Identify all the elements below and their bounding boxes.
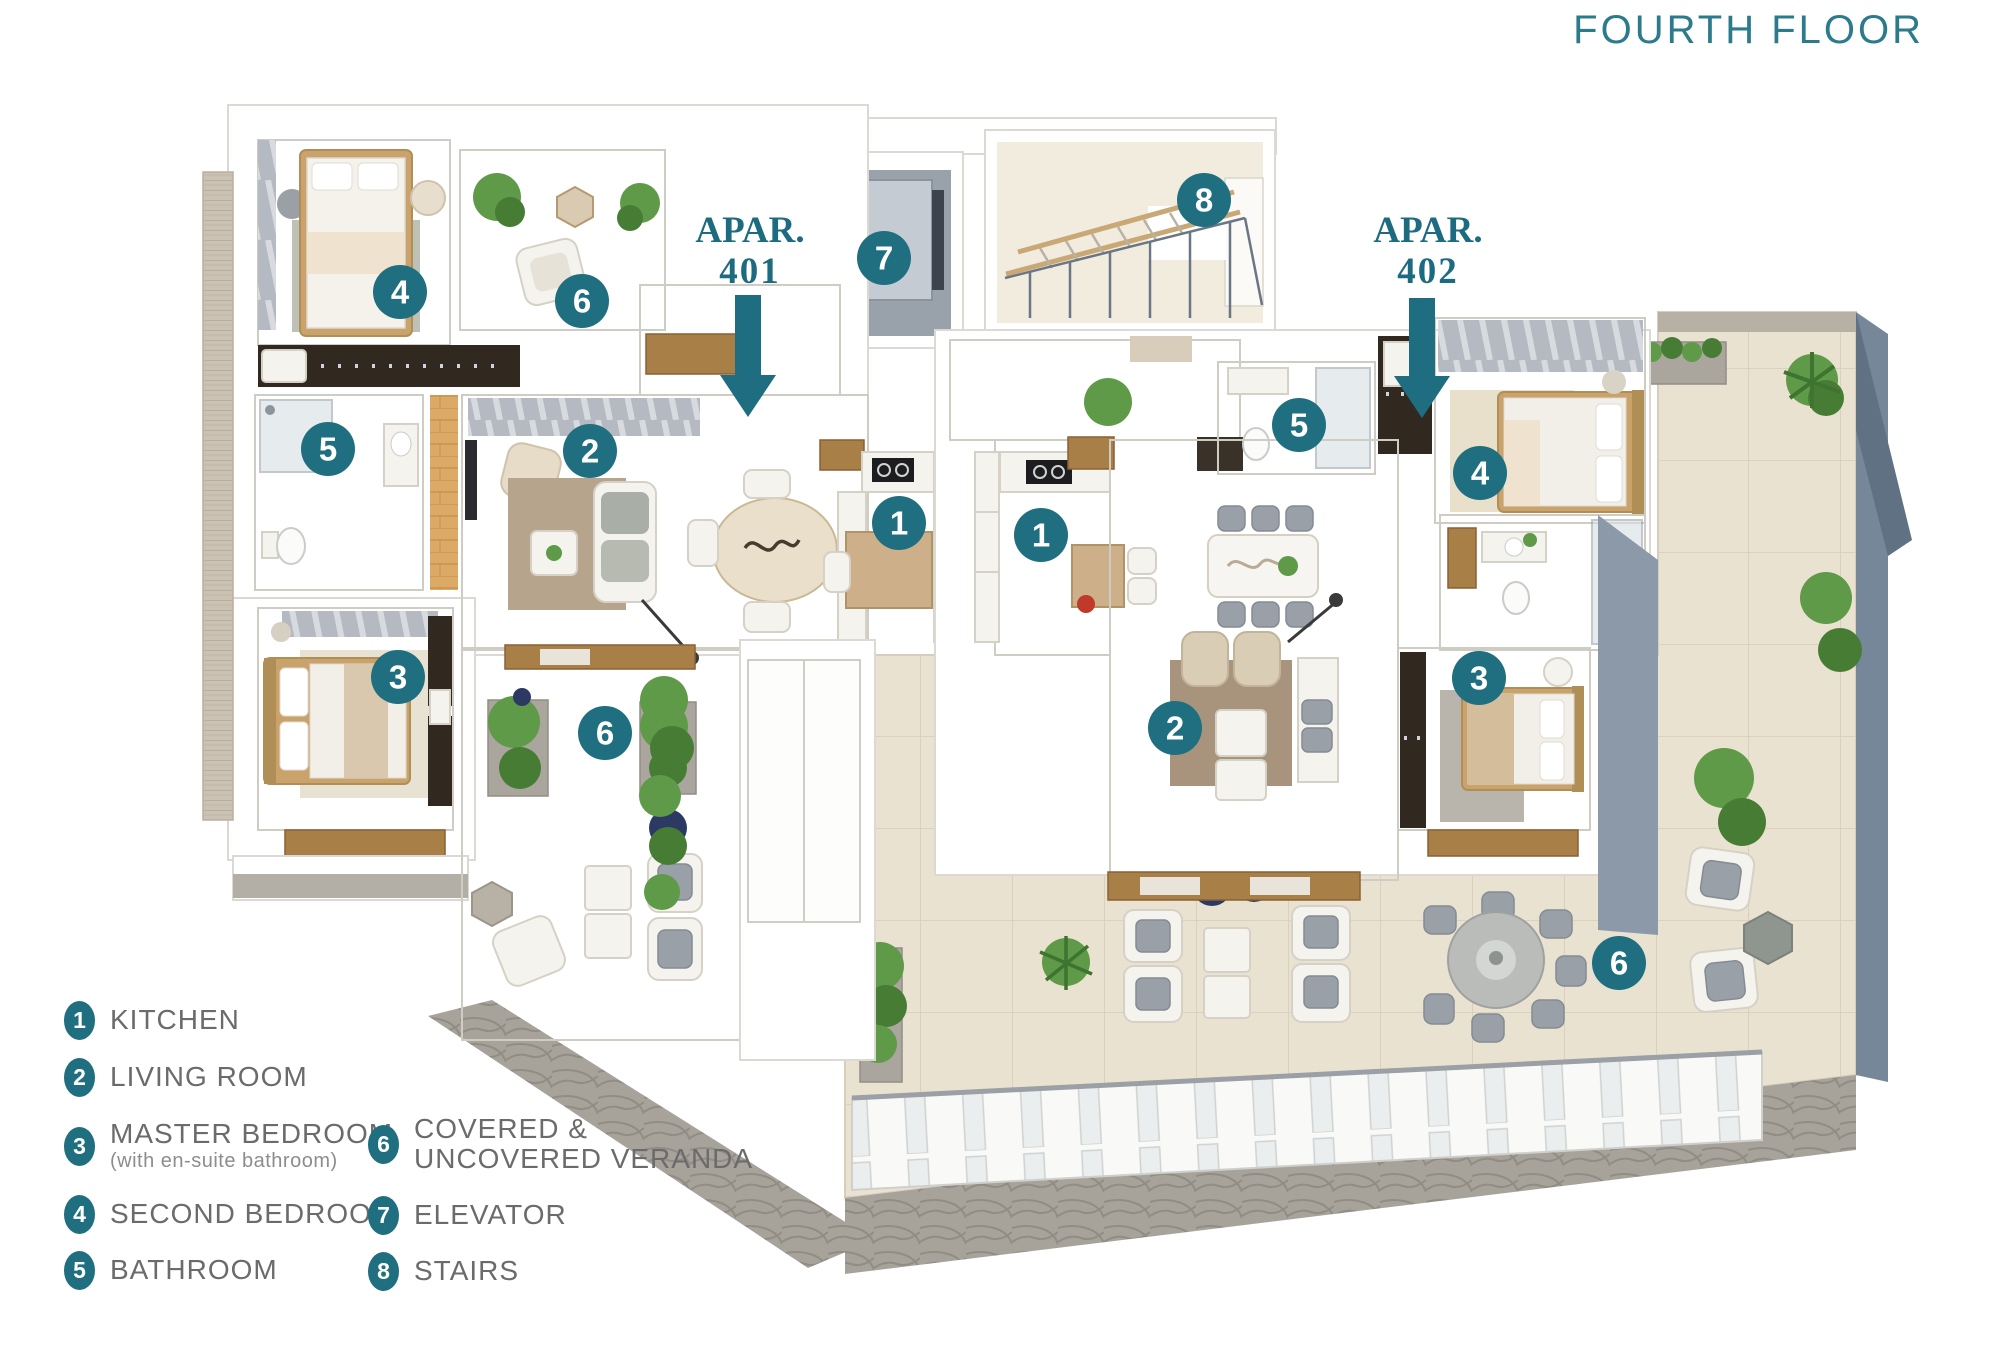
curtains bbox=[282, 611, 438, 637]
toilet bbox=[1243, 428, 1269, 460]
legend-badge: 4 bbox=[64, 1195, 95, 1234]
page-title: FOURTH FLOOR bbox=[1573, 8, 1924, 53]
legend-item-elevator: 7 ELEVATOR bbox=[368, 1196, 567, 1235]
badge-second-bedroom-401: 4 bbox=[373, 265, 427, 319]
headboard bbox=[1632, 390, 1644, 514]
headboard bbox=[264, 658, 276, 784]
legend-badge: 2 bbox=[64, 1058, 95, 1097]
legend-label: LIVING ROOM bbox=[110, 1062, 308, 1092]
legend-item-stairs: 8 STAIRS bbox=[368, 1252, 519, 1291]
legend-badge: 6 bbox=[368, 1125, 399, 1164]
badge-second-bedroom-402: 4 bbox=[1453, 446, 1507, 500]
wardrobe bbox=[1400, 652, 1426, 828]
table bbox=[585, 914, 631, 958]
badge-master-bedroom-402: 3 bbox=[1452, 651, 1506, 705]
legend-label: COVERED & bbox=[414, 1114, 753, 1144]
badge-veranda-401-lower: 6 bbox=[578, 706, 632, 760]
chair bbox=[744, 470, 790, 498]
apartment-402-number: 402 bbox=[1338, 253, 1518, 290]
legend-label: ELEVATOR bbox=[414, 1200, 567, 1230]
svg-text:6: 6 bbox=[1610, 945, 1628, 982]
badge-kitchen-402: 1 bbox=[1014, 508, 1068, 562]
svg-text:3: 3 bbox=[389, 659, 407, 696]
armchair bbox=[1234, 632, 1280, 686]
badge-bathroom-402: 5 bbox=[1272, 398, 1326, 452]
console bbox=[1197, 437, 1243, 471]
svg-text:8: 8 bbox=[1195, 182, 1213, 219]
tall-cabinets bbox=[975, 452, 999, 642]
badge-living-401: 2 bbox=[563, 424, 617, 478]
coffee-table bbox=[1216, 760, 1266, 800]
hallway-401 bbox=[430, 395, 458, 590]
coffee-table bbox=[1216, 710, 1266, 756]
svg-text:3: 3 bbox=[1470, 660, 1488, 697]
tv bbox=[465, 440, 477, 520]
legend-label: MASTER BEDROOM bbox=[110, 1119, 393, 1149]
apartment-401 bbox=[203, 105, 960, 1060]
svg-text:4: 4 bbox=[391, 274, 410, 311]
apartment-402-name: APAR. bbox=[1373, 210, 1482, 251]
fruit-bowl bbox=[1077, 595, 1095, 613]
lamp bbox=[271, 622, 291, 642]
badge-master-bedroom-401: 3 bbox=[371, 650, 425, 704]
legend-label: KITCHEN bbox=[110, 1005, 240, 1035]
badge-elevator: 7 bbox=[857, 231, 911, 285]
legend-item-living-room: 2 LIVING ROOM bbox=[64, 1058, 308, 1097]
lamp bbox=[1602, 370, 1626, 394]
apartment-402-label: APAR. 402 bbox=[1338, 212, 1518, 290]
sliding-door bbox=[1428, 830, 1578, 856]
terrace-wall-wedge bbox=[1598, 515, 1658, 935]
badge-living-402: 2 bbox=[1148, 701, 1202, 755]
table bbox=[585, 866, 631, 910]
legend-item-veranda: 6 COVERED & UNCOVERED VERANDA bbox=[368, 1114, 753, 1174]
toilet bbox=[1503, 582, 1529, 614]
hex-table bbox=[472, 882, 512, 926]
chair bbox=[744, 602, 790, 632]
room-veranda-401-lower bbox=[462, 645, 740, 1040]
entrance-block bbox=[639, 640, 875, 1060]
wardrobe bbox=[428, 716, 452, 806]
legend-badge: 8 bbox=[368, 1252, 399, 1291]
chair bbox=[1128, 578, 1156, 604]
wood-cabinet bbox=[1068, 437, 1114, 469]
elevator-door-gap bbox=[932, 190, 944, 290]
terrace-top-shadow bbox=[1658, 312, 1856, 332]
badge-stairs: 8 bbox=[1177, 173, 1231, 227]
legend-item-kitchen: 1 KITCHEN bbox=[64, 1001, 240, 1040]
legend-item-bathroom: 5 BATHROOM bbox=[64, 1251, 278, 1290]
svg-text:1: 1 bbox=[890, 505, 908, 542]
badge-bathroom-401: 5 bbox=[301, 422, 355, 476]
legend-badge: 3 bbox=[64, 1127, 95, 1166]
legend-badge: 5 bbox=[64, 1251, 95, 1290]
curtains bbox=[258, 140, 276, 330]
svg-text:6: 6 bbox=[573, 283, 591, 320]
badge-veranda-401-upper: 6 bbox=[555, 274, 609, 328]
core-stairs bbox=[985, 130, 1275, 335]
legend-sublabel: (with en-suite bathroom) bbox=[110, 1150, 393, 1173]
legend-label-line2: UNCOVERED VERANDA bbox=[414, 1144, 753, 1174]
floor-plan-page: 4 6 5 2 1 1 3 6 7 8 5 4 3 2 6 FOURTH FLO… bbox=[0, 0, 2000, 1359]
legend-badge: 1 bbox=[64, 1001, 95, 1040]
sliding-door bbox=[285, 830, 445, 856]
curtains bbox=[1438, 320, 1643, 372]
sliding-doors bbox=[505, 645, 695, 669]
stool bbox=[824, 552, 850, 592]
vanity bbox=[1228, 368, 1288, 394]
legend-label: STAIRS bbox=[414, 1256, 519, 1286]
exterior-stone-strip bbox=[203, 172, 233, 820]
armchair bbox=[411, 181, 445, 215]
legend-item-second-bedroom: 4 SECOND BEDROOM bbox=[64, 1195, 396, 1234]
svg-text:2: 2 bbox=[581, 433, 599, 470]
throw-blanket bbox=[1504, 420, 1540, 506]
svg-text:6: 6 bbox=[596, 715, 614, 752]
throw-blanket bbox=[1468, 694, 1514, 784]
ottoman bbox=[262, 350, 306, 382]
legend-label: BATHROOM bbox=[110, 1255, 278, 1285]
svg-text:7: 7 bbox=[875, 240, 893, 277]
legend-item-master-bedroom: 3 MASTER BEDROOM (with en-suite bathroom… bbox=[64, 1119, 393, 1173]
terrace-planter-top bbox=[1638, 337, 1726, 384]
legend-label: SECOND BEDROOM bbox=[110, 1199, 396, 1229]
chair bbox=[1128, 548, 1156, 574]
chair bbox=[688, 520, 718, 566]
svg-text:1: 1 bbox=[1032, 517, 1050, 554]
hall-cabinet bbox=[646, 334, 738, 374]
svg-text:5: 5 bbox=[1290, 407, 1308, 444]
legend-badge: 7 bbox=[368, 1196, 399, 1235]
bedside-table bbox=[1544, 658, 1572, 686]
toilet bbox=[277, 528, 305, 564]
doormat bbox=[1130, 336, 1192, 362]
badge-veranda-402: 6 bbox=[1592, 936, 1646, 990]
apartment-401-name: APAR. bbox=[695, 210, 804, 251]
hex-table bbox=[557, 187, 593, 227]
svg-text:5: 5 bbox=[319, 431, 337, 468]
svg-text:4: 4 bbox=[1471, 455, 1490, 492]
balcony-edge bbox=[233, 874, 468, 898]
cooktop bbox=[1026, 460, 1072, 484]
armchair bbox=[489, 912, 568, 989]
dining-table bbox=[1208, 535, 1318, 597]
svg-text:2: 2 bbox=[1166, 710, 1184, 747]
armchair bbox=[1182, 632, 1228, 686]
apartment-401-label: APAR. 401 bbox=[660, 212, 840, 290]
badge-kitchen-401: 1 bbox=[872, 496, 926, 550]
apartment-401-number: 401 bbox=[660, 253, 840, 290]
